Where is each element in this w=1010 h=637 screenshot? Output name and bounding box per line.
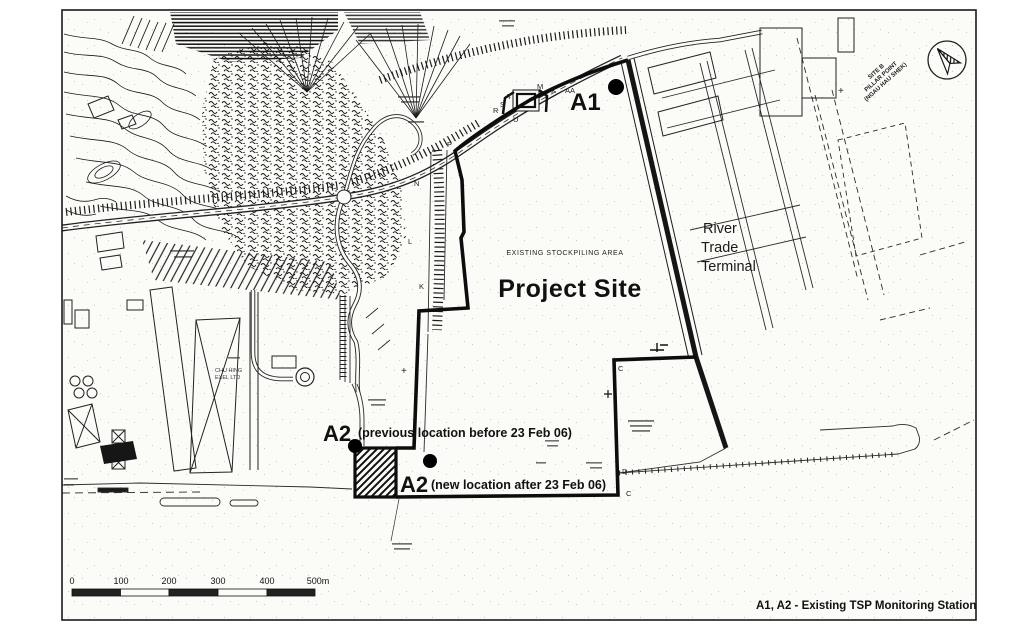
svg-text:P: P [447, 140, 452, 149]
a2-new-dot [423, 454, 437, 468]
road-junction [337, 190, 351, 204]
river-trade-terminal-label-1: River [703, 221, 737, 237]
svg-text:AA: AA [565, 86, 575, 95]
svg-text:+: + [401, 366, 407, 377]
svg-text:X: X [551, 86, 556, 95]
svg-text:K: K [419, 282, 424, 291]
svg-text:R: R [493, 106, 499, 115]
scale-tick-500m: 500m [307, 576, 330, 586]
a1-dot [608, 79, 624, 95]
company-label-2: EXEL LTD [215, 375, 240, 381]
scale-tick-300: 300 [210, 576, 225, 586]
river-trade-terminal-label-3: Terminal [701, 259, 756, 275]
stockpiling-area-label: EXISTING STOCKPILING AREA [506, 250, 623, 257]
project-site-label: Project Site [498, 275, 642, 303]
svg-text:S: S [500, 100, 505, 109]
svg-text:U: U [513, 115, 518, 124]
scale-tick-0: 0 [69, 576, 74, 586]
svg-text:T: T [507, 92, 512, 101]
scanned-site-plan: A1 A2 (previous location before 23 Feb 0… [0, 0, 1010, 637]
site-map: A1 A2 (previous location before 23 Feb 0… [0, 0, 1010, 637]
legend-note: A1, A2 - Existing TSP Monitoring Station [756, 600, 976, 612]
scale-tick-400: 400 [259, 576, 274, 586]
a2-new-label: A2 [400, 472, 428, 497]
a2-previous-label: A2 [323, 421, 351, 446]
a2-previous-note: (previous location before 23 Feb 06) [358, 426, 572, 440]
company-label-1: CHU HING [215, 368, 242, 374]
svg-text:M: M [537, 82, 543, 91]
a2-previous-station-square [355, 448, 396, 497]
svg-text:D: D [622, 467, 628, 476]
scale-tick-100: 100 [113, 576, 128, 586]
a2-new-note: (new location after 23 Feb 06) [431, 478, 606, 492]
river-trade-terminal-label-2: Trade [701, 240, 738, 256]
svg-text:N: N [414, 179, 419, 188]
svg-text:C: C [626, 489, 632, 498]
svg-text:+: + [838, 86, 844, 97]
svg-text:L: L [408, 237, 412, 246]
scale-tick-200: 200 [161, 576, 176, 586]
svg-text:C: C [618, 364, 624, 373]
